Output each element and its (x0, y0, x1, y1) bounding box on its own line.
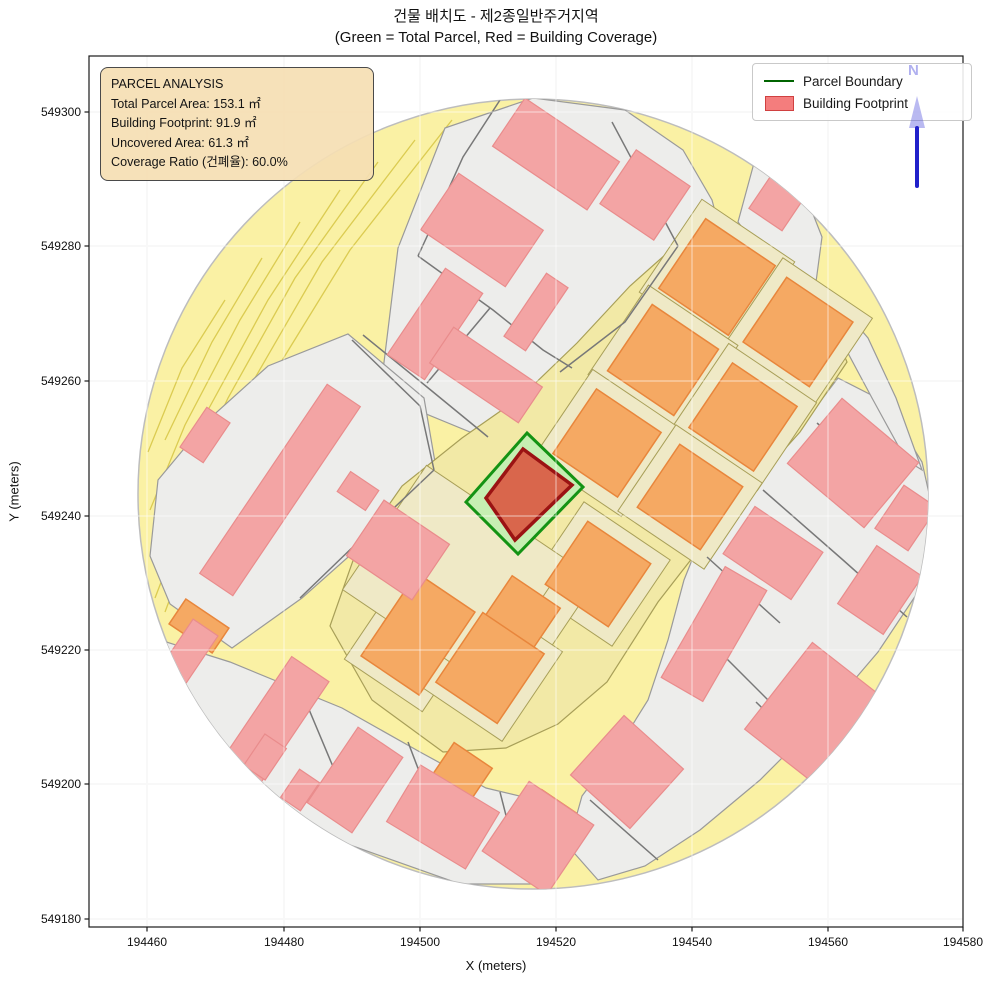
x-tick-label: 194540 (672, 935, 712, 949)
analysis-total: Total Parcel Area: 153.1 ㎡ (111, 95, 363, 115)
legend-line-swatch-wrap (761, 80, 797, 82)
north-arrow-head-icon (909, 96, 925, 128)
legend-row-parcel-boundary: Parcel Boundary (761, 70, 963, 92)
y-tick-label: 549220 (41, 643, 81, 657)
north-arrow-label: N (908, 62, 919, 79)
y-tick-label: 549200 (41, 777, 81, 791)
parcel-analysis-box: PARCEL ANALYSIS Total Parcel Area: 153.1… (100, 67, 374, 181)
legend-row-building-footprint: Building Footprint (761, 92, 963, 114)
legend: Parcel Boundary Building Footprint (752, 63, 972, 121)
analysis-uncovered: Uncovered Area: 61.3 ㎡ (111, 134, 363, 154)
x-tick-label: 194500 (400, 935, 440, 949)
y-tick-label: 549300 (41, 105, 81, 119)
y-tick-label: 549180 (41, 912, 81, 926)
x-tick-label: 194460 (127, 935, 167, 949)
legend-label-parcel-boundary: Parcel Boundary (803, 74, 903, 89)
y-tick-label: 549280 (41, 239, 81, 253)
legend-patch-swatch-wrap (761, 96, 797, 111)
y-tick-label: 549260 (41, 374, 81, 388)
x-axis-label: X (meters) (0, 958, 992, 973)
analysis-footprint: Building Footprint: 91.9 ㎡ (111, 114, 363, 134)
legend-label-building-footprint: Building Footprint (803, 96, 908, 111)
analysis-coverage: Coverage Ratio (건폐율): 60.0% (111, 153, 363, 173)
x-tick-label: 194520 (536, 935, 576, 949)
analysis-heading: PARCEL ANALYSIS (111, 75, 363, 95)
y-tick-label: 549240 (41, 509, 81, 523)
x-tick-label: 194580 (943, 935, 983, 949)
building-footprint-patch-swatch (765, 96, 794, 111)
x-tick-label: 194480 (264, 935, 304, 949)
north-arrow-shaft (915, 126, 919, 188)
parcel-boundary-line-swatch (764, 80, 794, 82)
x-tick-label: 194560 (808, 935, 848, 949)
y-axis-label: Y (meters) (7, 442, 22, 542)
